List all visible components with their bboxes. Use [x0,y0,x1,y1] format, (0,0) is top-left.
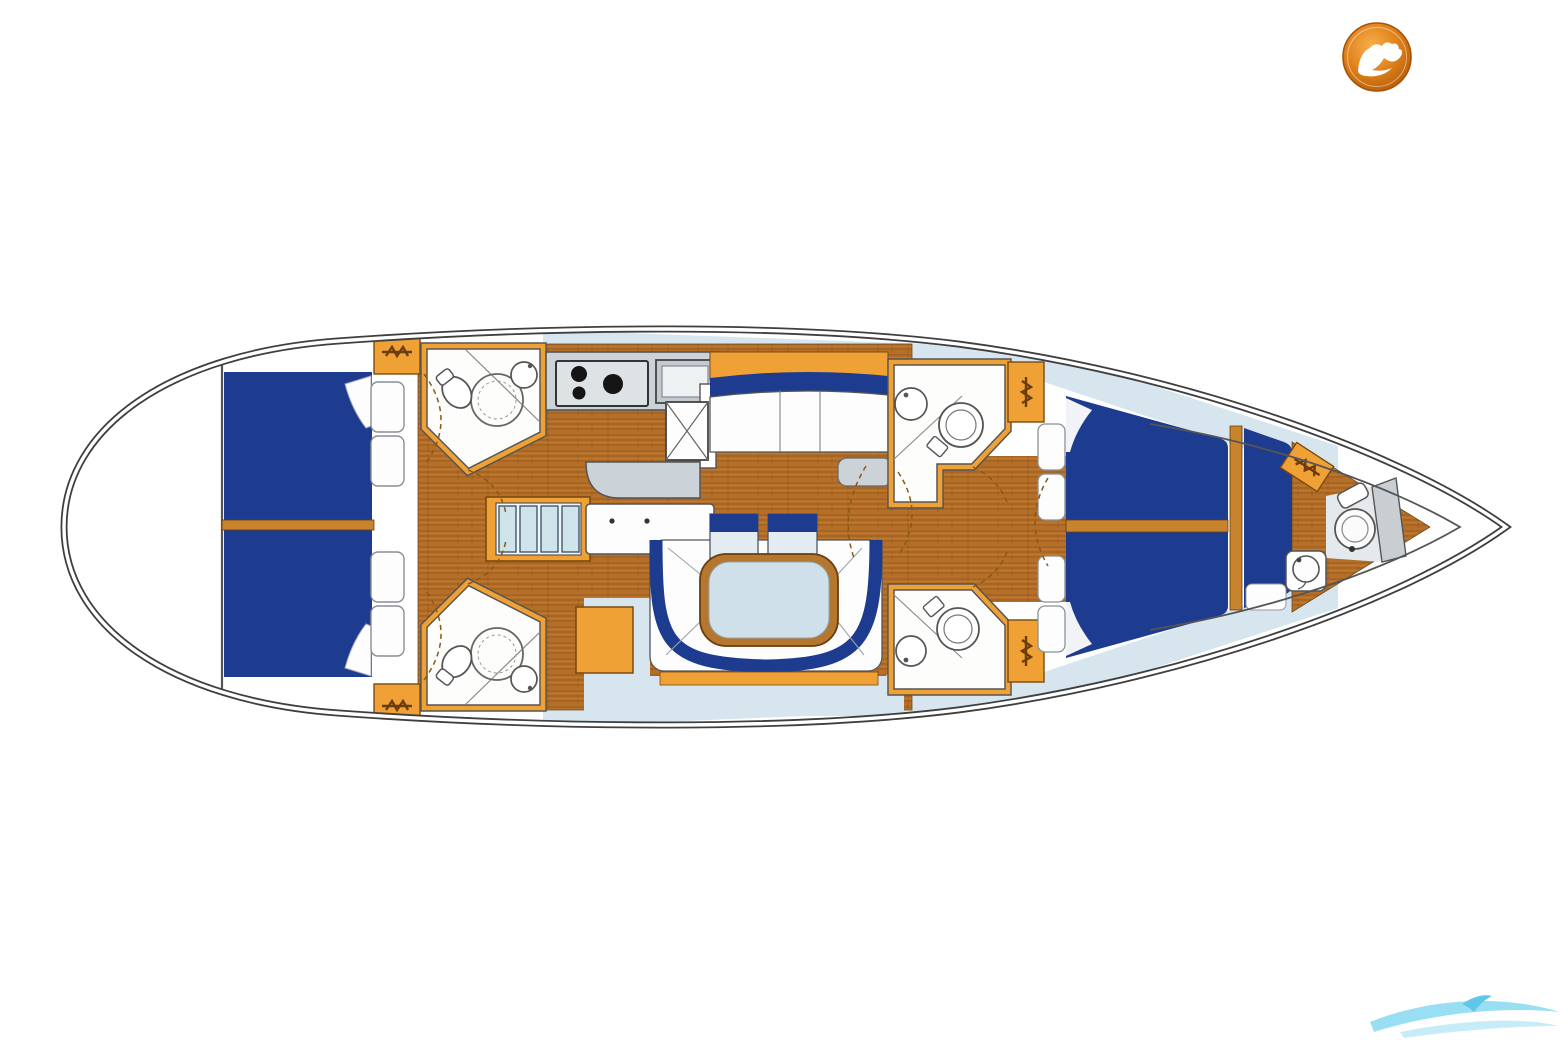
settee-port [710,352,888,452]
berth-bulkhead [1230,426,1242,610]
step [499,506,516,552]
step [562,506,579,552]
locker-cushion [1038,556,1065,602]
latch [644,518,649,523]
locker-cushion [371,382,404,432]
v-berth-divider [1066,520,1228,532]
aft-galley-shelf [838,458,892,486]
seat-back [710,514,758,558]
yacht-floorplan-page [0,0,1560,1040]
latch [609,518,614,523]
locker-cushion [371,436,404,486]
burner [603,374,623,394]
locker-cushion [371,552,404,602]
step [541,506,558,552]
seat-back [768,514,817,558]
tap-icon [1297,558,1302,563]
salon-table-top [709,562,829,638]
tap-icon [528,686,532,690]
galley-return-counter [586,462,700,498]
locker-cushion [1038,606,1065,652]
locker-cushion [1038,424,1065,470]
tap-icon [528,364,532,368]
deck-plan-canvas [0,0,1560,1040]
sink-icon [511,362,537,388]
sink-icon [895,388,927,420]
stove-icon [556,361,648,406]
locker-cushion [1038,474,1065,520]
toilet-icon [937,608,979,650]
wave-swoosh-under [1400,1021,1558,1038]
bow-sink [1286,551,1326,591]
aft-berth-divider [222,520,374,530]
step [520,506,537,552]
burner [573,387,586,400]
tap-icon [904,393,909,398]
settee-base-trim [660,672,878,685]
companionway-steps [486,497,590,561]
settee-cushions [710,391,888,452]
burner [571,366,587,382]
brand-logo [1343,23,1411,91]
sink-icon [896,636,926,666]
locker-cushion [371,606,404,656]
sink-icon [511,666,537,692]
watermark-swoosh [1370,995,1560,1038]
salon-cabinet [576,607,633,673]
tap-icon [904,658,909,663]
fore-berth-cushion [1246,584,1286,610]
